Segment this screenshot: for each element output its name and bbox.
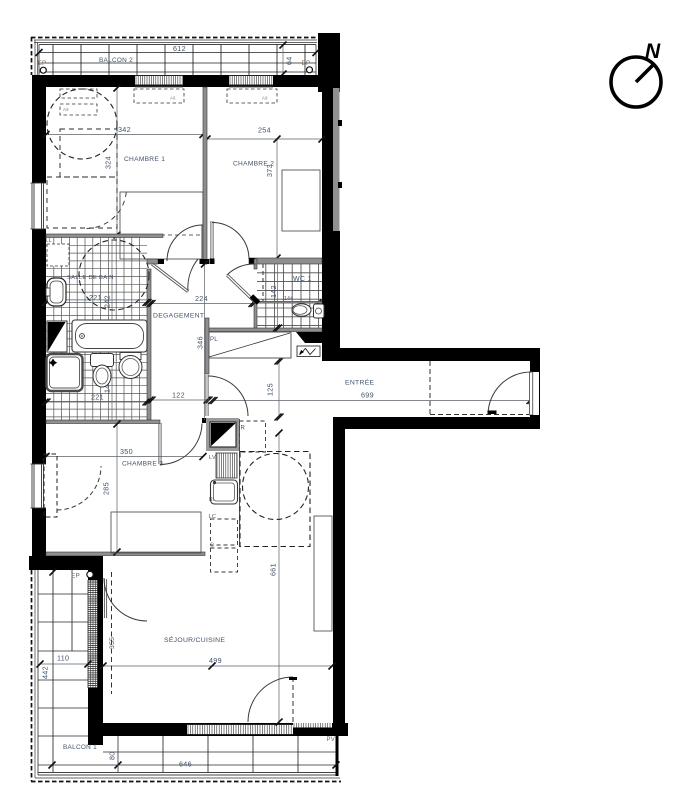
- svg-text:BALCON 2: BALCON 2: [99, 57, 133, 64]
- svg-text:224: 224: [195, 294, 208, 303]
- svg-text:SALLE DE BAIN: SALLE DE BAIN: [67, 275, 114, 281]
- svg-text:CHAMBRE 3: CHAMBRE 3: [122, 461, 163, 468]
- svg-text:WC 1: WC 1: [293, 276, 312, 283]
- svg-text:346: 346: [196, 336, 205, 349]
- svg-text:BALCON 1: BALCON 1: [63, 744, 97, 751]
- svg-text:EP: EP: [302, 60, 311, 67]
- svg-text:242: 242: [103, 295, 112, 308]
- svg-text:661: 661: [269, 563, 278, 576]
- svg-text:LL: LL: [46, 238, 53, 244]
- svg-text:373: 373: [265, 164, 274, 177]
- svg-text:285: 285: [102, 482, 111, 495]
- svg-text:110: 110: [57, 654, 69, 663]
- svg-text:699: 699: [361, 391, 374, 400]
- svg-text:499: 499: [209, 656, 222, 665]
- svg-text:64: 64: [285, 56, 294, 65]
- svg-text:EP: EP: [38, 60, 47, 67]
- svg-text:342: 342: [118, 125, 131, 134]
- svg-text:355: 355: [109, 637, 116, 649]
- svg-text:80: 80: [108, 751, 117, 760]
- svg-text:442: 442: [41, 666, 50, 679]
- svg-text:EP: EP: [71, 573, 80, 580]
- svg-text:350: 350: [120, 447, 133, 456]
- svg-text:646: 646: [179, 760, 192, 769]
- svg-text:125: 125: [266, 383, 275, 396]
- svg-text:A9: A9: [262, 96, 268, 101]
- svg-text:221: 221: [89, 293, 102, 302]
- svg-text:RI: RI: [209, 497, 215, 503]
- svg-text:CHAMBRE 1: CHAMBRE 1: [124, 156, 165, 163]
- svg-text:SÉJOUR/CUISINE: SÉJOUR/CUISINE: [164, 635, 225, 644]
- svg-text:ENTRÉE: ENTRÉE: [345, 378, 375, 387]
- svg-text:612: 612: [173, 44, 186, 53]
- svg-text:DEGAGEMENT: DEGAGEMENT: [153, 313, 204, 320]
- svg-text:R: R: [241, 426, 246, 432]
- svg-text:122: 122: [172, 391, 185, 400]
- svg-text:LV: LV: [209, 455, 216, 461]
- svg-text:254: 254: [258, 126, 271, 135]
- svg-text:A9: A9: [63, 107, 69, 112]
- svg-text:PL: PL: [210, 337, 218, 343]
- svg-text:PV: PV: [327, 737, 336, 743]
- svg-text:N: N: [645, 40, 661, 63]
- svg-text:324: 324: [104, 156, 113, 169]
- svg-text:A6: A6: [170, 96, 176, 101]
- svg-text:142: 142: [269, 285, 278, 298]
